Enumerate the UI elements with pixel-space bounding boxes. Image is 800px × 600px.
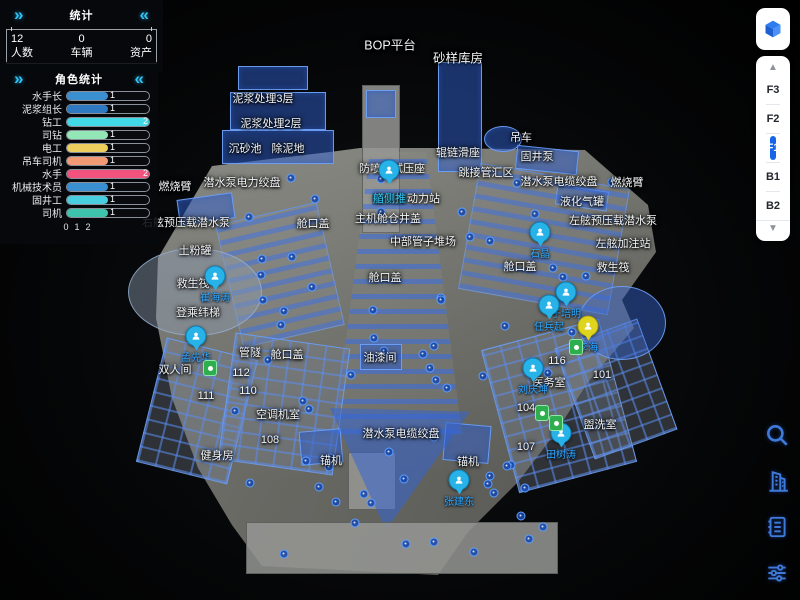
deck-marker-icon bbox=[301, 456, 310, 465]
deck-structure bbox=[238, 66, 308, 90]
deck-marker-icon bbox=[385, 447, 394, 456]
deck-marker-icon bbox=[501, 322, 510, 331]
room-label: 沉砂池 bbox=[229, 140, 262, 156]
label-part: 动力站 bbox=[407, 193, 440, 205]
deck-marker-icon bbox=[582, 272, 591, 281]
deck-marker-icon bbox=[402, 540, 411, 549]
device-marker-icon[interactable] bbox=[549, 415, 563, 431]
room-label: 左舷加注站 bbox=[596, 235, 651, 251]
room-label: 液化气罐 bbox=[560, 193, 604, 209]
floor-up-icon[interactable]: ▲ bbox=[768, 60, 778, 76]
room-label: BOP平台 bbox=[364, 35, 415, 54]
person-pin[interactable] bbox=[539, 295, 560, 316]
role-bar-value: 1 bbox=[110, 181, 115, 191]
deck-marker-icon bbox=[502, 462, 511, 471]
axis-tick: 2 bbox=[85, 222, 90, 232]
deck-marker-icon bbox=[279, 307, 288, 316]
floor-label: B2 bbox=[766, 200, 780, 212]
role-bar-fill bbox=[67, 105, 108, 113]
role-bar-track: 2 bbox=[66, 117, 150, 127]
floor-button-f3[interactable]: F3 bbox=[766, 76, 780, 104]
deck-marker-icon bbox=[368, 306, 377, 315]
person-name: 崔海涛 bbox=[200, 289, 230, 304]
role-bar-value: 2 bbox=[143, 116, 148, 126]
deck-marker-icon bbox=[538, 523, 547, 532]
deck-marker-icon bbox=[426, 364, 435, 373]
person-name: 张建东 bbox=[444, 493, 474, 508]
deck-marker-icon bbox=[437, 296, 446, 305]
role-bar-track: 1 bbox=[66, 104, 150, 114]
room-label: 固井泵 bbox=[521, 148, 554, 164]
room-label: 主机舱仓井盖 bbox=[355, 210, 421, 226]
deck-marker-icon bbox=[419, 349, 428, 358]
room-label: 救生筏 bbox=[597, 259, 630, 275]
search-icon bbox=[764, 422, 790, 448]
deck-marker-icon bbox=[399, 475, 408, 484]
deck-marker-icon bbox=[430, 341, 439, 350]
deck-structure bbox=[128, 248, 262, 336]
deck-marker-icon bbox=[308, 282, 317, 291]
deck-marker-icon bbox=[559, 273, 568, 282]
person-pin[interactable] bbox=[449, 470, 470, 491]
person-pin[interactable] bbox=[186, 326, 207, 347]
role-bar-value: 1 bbox=[110, 90, 115, 100]
room-number-label: 116 bbox=[548, 355, 566, 367]
room-label: 舱口盖 bbox=[297, 215, 330, 231]
collapse-left-icon[interactable]: « bbox=[140, 6, 149, 23]
stats-box: 1200 人数车辆资产 bbox=[6, 29, 157, 64]
deck-marker-icon bbox=[286, 174, 295, 183]
building-icon bbox=[764, 468, 790, 494]
device-marker-icon[interactable] bbox=[569, 339, 583, 355]
collapse-right-icon[interactable]: » bbox=[14, 70, 23, 87]
room-label-thruster-station: 艏侧推动力站 bbox=[372, 190, 440, 206]
floor-label: F2 bbox=[767, 113, 780, 125]
deck-marker-icon bbox=[567, 328, 576, 337]
deck-marker-icon bbox=[314, 482, 323, 491]
floor-label: F1 bbox=[767, 142, 780, 154]
room-label: 空调机室 bbox=[256, 406, 300, 422]
deck-marker-icon bbox=[288, 253, 297, 262]
cube-icon bbox=[763, 18, 783, 40]
room-label: 健身房 bbox=[201, 447, 234, 463]
room-number-label: 112 bbox=[232, 367, 250, 379]
filter-sliders-icon bbox=[764, 560, 790, 586]
role-bar-track: 1 bbox=[66, 130, 150, 140]
room-label: 舱口盖 bbox=[504, 258, 537, 274]
device-marker-icon[interactable] bbox=[203, 360, 217, 376]
stat-label: 人数 bbox=[11, 46, 58, 60]
stat-label: 车辆 bbox=[58, 46, 105, 60]
deck-marker-icon bbox=[369, 334, 378, 343]
deck-marker-icon bbox=[277, 320, 286, 329]
deck-marker-icon bbox=[244, 213, 253, 222]
stat-label: 资产 bbox=[105, 46, 152, 60]
stat-value: 0 bbox=[105, 32, 152, 46]
person-pin[interactable] bbox=[379, 160, 400, 181]
room-number-label: 111 bbox=[198, 390, 215, 402]
stat-value: 12 bbox=[11, 32, 58, 46]
floor-label: B1 bbox=[766, 171, 780, 183]
room-label: 潜水泵电力绞盘 bbox=[204, 174, 281, 190]
floor-button-b2[interactable]: B2 bbox=[766, 191, 780, 220]
room-label: 辊链滑座 bbox=[436, 144, 480, 160]
axis-tick: 0 bbox=[63, 222, 68, 232]
room-number-label: 107 bbox=[517, 441, 535, 453]
deck-marker-icon bbox=[231, 406, 240, 415]
deck-marker-icon bbox=[521, 483, 530, 492]
deck-marker-icon bbox=[431, 376, 440, 385]
role-bar-fill bbox=[67, 131, 108, 139]
role-bar-value: 1 bbox=[110, 129, 115, 139]
floor-label: F3 bbox=[767, 84, 780, 96]
deck-marker-icon bbox=[258, 255, 267, 264]
view-cube-button[interactable] bbox=[756, 8, 790, 50]
room-label: 锚机 bbox=[457, 453, 479, 469]
role-bar-track: 2 bbox=[66, 169, 150, 179]
axis-tick: 1 bbox=[74, 222, 79, 232]
building-button[interactable] bbox=[762, 466, 792, 496]
role-bar-track: 1 bbox=[66, 91, 150, 101]
role-bar-fill bbox=[67, 118, 149, 126]
room-label: 跳接管汇区 bbox=[459, 164, 514, 180]
device-marker-icon[interactable] bbox=[535, 405, 549, 421]
deck-marker-icon bbox=[310, 195, 319, 204]
deck-marker-icon bbox=[259, 295, 268, 304]
floor-button-f2[interactable]: F2 bbox=[766, 104, 780, 133]
deck-marker-icon bbox=[346, 370, 355, 379]
deck-marker-icon bbox=[517, 511, 526, 520]
room-label: 吊车 bbox=[510, 129, 532, 145]
list-button[interactable] bbox=[762, 512, 792, 542]
filter-button[interactable] bbox=[762, 558, 792, 588]
deck-marker-icon bbox=[486, 237, 495, 246]
collapse-right-icon[interactable]: » bbox=[14, 6, 23, 23]
room-label: 燃烧臂 bbox=[159, 178, 192, 194]
room-label: 管隧 bbox=[239, 344, 261, 360]
deck-marker-icon bbox=[489, 489, 498, 498]
list-icon bbox=[764, 514, 790, 540]
floor-button-f1[interactable]: F1 bbox=[766, 133, 780, 162]
deck-marker-icon bbox=[350, 519, 359, 528]
room-label: 泥浆处理3层 bbox=[232, 90, 293, 106]
role-bar-value: 1 bbox=[110, 142, 115, 152]
deck-marker-icon bbox=[366, 499, 375, 508]
deck-marker-icon bbox=[469, 547, 478, 556]
room-label: 除泥地 bbox=[272, 140, 305, 156]
floor-selector: ▲ F3F2F1B1B2 ▼ bbox=[756, 56, 790, 241]
floor-down-icon[interactable]: ▼ bbox=[756, 220, 790, 237]
deck-marker-icon bbox=[443, 384, 452, 393]
room-number-label: 101 bbox=[593, 369, 611, 381]
deck-marker-icon bbox=[332, 498, 341, 507]
deck-marker-icon bbox=[465, 232, 474, 241]
role-bar-fill bbox=[67, 209, 108, 217]
label-part: 艏侧推 bbox=[372, 193, 407, 205]
person-name: 石晶 bbox=[530, 245, 550, 260]
role-axis: 012 bbox=[66, 222, 88, 234]
role-bar-track: 1 bbox=[66, 143, 150, 153]
role-bar-fill bbox=[67, 92, 108, 100]
deck-marker-icon bbox=[257, 271, 266, 280]
person-name: 刘庆坤 bbox=[518, 381, 548, 396]
deck-marker-icon bbox=[279, 549, 288, 558]
role-bar-fill bbox=[67, 157, 108, 165]
deck-marker-icon bbox=[524, 535, 533, 544]
role-bar-fill bbox=[67, 196, 108, 204]
floor-button-b1[interactable]: B1 bbox=[766, 162, 780, 191]
room-label: 盥洗室 bbox=[584, 416, 617, 432]
person-pin[interactable] bbox=[578, 316, 599, 337]
deck-marker-icon bbox=[478, 372, 487, 381]
room-label: 登乘纬梯 bbox=[176, 304, 220, 320]
deck-structure bbox=[366, 90, 396, 118]
role-bar-value: 1 bbox=[110, 207, 115, 217]
room-number-label: 110 bbox=[239, 385, 257, 397]
room-number-label: 104 bbox=[517, 402, 535, 414]
role-bar-track: 1 bbox=[66, 195, 150, 205]
role-bar-fill bbox=[67, 144, 108, 152]
collapse-left-icon[interactable]: « bbox=[135, 70, 144, 87]
room-label: 油漆间 bbox=[364, 349, 397, 365]
deck-marker-icon bbox=[304, 405, 313, 414]
role-bar-row: 司机1 bbox=[6, 206, 154, 219]
room-label: 砂样库房 bbox=[433, 48, 483, 67]
role-bar-value: 2 bbox=[143, 168, 148, 178]
room-label: 泥浆处理2层 bbox=[240, 115, 301, 131]
person-pin[interactable] bbox=[556, 282, 577, 303]
deck-marker-icon bbox=[246, 478, 255, 487]
room-label: 舱口盖 bbox=[271, 346, 304, 362]
role-bar-track: 1 bbox=[66, 208, 150, 218]
person-pin[interactable] bbox=[530, 222, 551, 243]
role-panel-title: 角色统计 bbox=[55, 71, 103, 87]
stat-value: 0 bbox=[58, 32, 105, 46]
person-name: 任兵起 bbox=[534, 318, 564, 333]
deck-marker-icon bbox=[429, 538, 438, 547]
deck-marker-icon bbox=[531, 210, 540, 219]
role-bar-fill bbox=[67, 183, 108, 191]
role-bar-fill bbox=[67, 170, 149, 178]
room-label: 舱口盖 bbox=[369, 269, 402, 285]
room-label: 中部管子堆场 bbox=[390, 233, 456, 249]
deck-structure bbox=[246, 522, 558, 574]
role-label: 司机 bbox=[6, 205, 66, 220]
search-button[interactable] bbox=[762, 420, 792, 450]
person-pin[interactable] bbox=[205, 266, 226, 287]
role-bar-value: 1 bbox=[110, 155, 115, 165]
room-label: 潜水泵电缆绞盘 bbox=[521, 173, 598, 189]
side-toolbar bbox=[762, 420, 792, 588]
deck-marker-icon bbox=[359, 489, 368, 498]
role-bar-track: 1 bbox=[66, 156, 150, 166]
role-stats-panel: » 角色统计 « 水手长1泥浆组长1钻工2司钻1电工1吊车司机1水手2机械技术员… bbox=[0, 62, 158, 244]
room-label: 土粉罐 bbox=[179, 242, 212, 258]
role-bar-track: 1 bbox=[66, 182, 150, 192]
room-label: 锚机 bbox=[320, 452, 342, 468]
deck-marker-icon bbox=[298, 397, 307, 406]
room-number-label: 108 bbox=[261, 434, 279, 446]
role-bar-value: 1 bbox=[110, 194, 115, 204]
person-pin[interactable] bbox=[523, 358, 544, 379]
room-label: 潜水泵电缆绞盘 bbox=[363, 425, 440, 441]
deck-marker-icon bbox=[457, 208, 466, 217]
person-name: 田树涛 bbox=[546, 446, 576, 461]
deck-marker-icon bbox=[483, 480, 492, 489]
deck-marker-icon bbox=[548, 263, 557, 272]
stats-panel-title: 统计 bbox=[70, 7, 94, 23]
role-bar-value: 1 bbox=[110, 103, 115, 113]
deck-marker-icon bbox=[486, 471, 495, 480]
room-label: 燃烧臂 bbox=[611, 174, 644, 190]
room-label: 左舷预压载潜水泵 bbox=[569, 212, 657, 228]
